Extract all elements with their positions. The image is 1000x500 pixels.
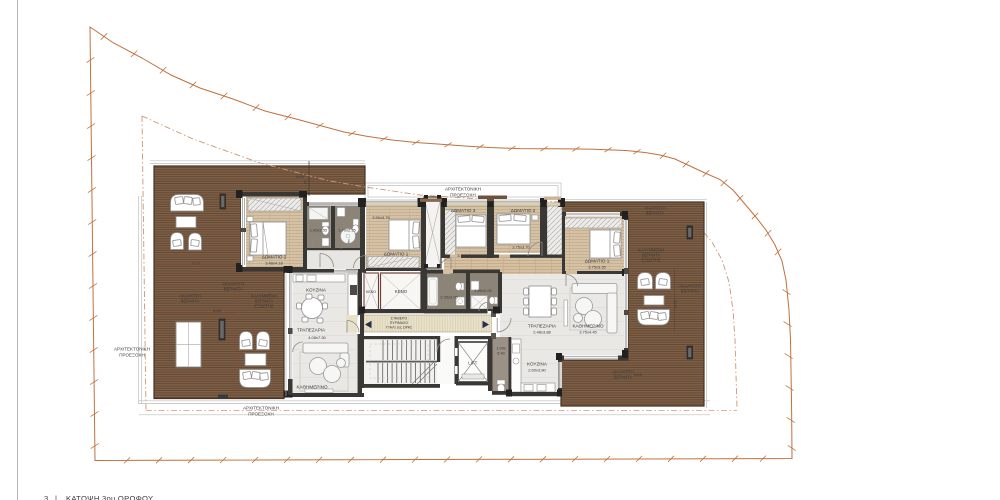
svg-text:8.06: 8.06	[634, 372, 643, 377]
svg-text:5.19: 5.19	[192, 261, 201, 266]
svg-text:ΕΞΩΣΤΗΣ: ΕΞΩΣΤΗΣ	[642, 258, 661, 263]
svg-text:ΚΟΥΖΙΝΑ: ΚΟΥΖΙΝΑ	[527, 362, 548, 367]
svg-text:ΕΞΩΣΤΗΣ: ΕΞΩΣΤΗΣ	[255, 304, 274, 309]
svg-text:1.09x: 1.09x	[496, 347, 505, 351]
svg-text:2.35x2.05: 2.35x2.05	[440, 295, 458, 300]
svg-text:60: 60	[304, 180, 308, 184]
svg-text:ΤΡΑΠΕΖΑΡΙΑ: ΤΡΑΠΕΖΑΡΙΑ	[528, 324, 557, 329]
svg-text:ΒΕΡΑΝΤΑ: ΒΕΡΑΝΤΑ	[181, 299, 200, 304]
svg-text:5.40: 5.40	[497, 352, 504, 356]
svg-text:ΚΑΤΟΨΗ 3ου ΟΡΟΦΟΥ: ΚΑΤΟΨΗ 3ου ΟΡΟΦΟΥ	[66, 494, 153, 500]
svg-text:ΑΡΧΙΤΕΚΤΟΝΙΚΗ: ΑΡΧΙΤΕΚΤΟΝΙΚΗ	[243, 406, 279, 411]
svg-text:|: |	[55, 494, 57, 500]
svg-text:3.50x3.75: 3.50x3.75	[372, 215, 390, 220]
svg-text:3: 3	[44, 494, 48, 500]
svg-text:LIFT: LIFT	[468, 361, 477, 366]
svg-text:8.00: 8.00	[296, 174, 305, 179]
svg-text:9.06: 9.06	[674, 300, 678, 307]
svg-text:2.48x3.88: 2.48x3.88	[533, 330, 551, 335]
svg-text:ΚΑΘΗΜΕΡΙΝΟ: ΚΑΘΗΜΕΡΙΝΟ	[296, 385, 327, 390]
svg-text:3.48x4.18: 3.48x4.18	[265, 261, 283, 266]
svg-text:3.75x3.35: 3.75x3.35	[588, 265, 606, 270]
svg-text:ΑΡΧΙΤΕΚΤΟΝΙΚΗ: ΑΡΧΙΤΕΚΤΟΝΙΚΗ	[114, 347, 150, 352]
svg-text:ΓΥΑΛΙ 1ας ΩΡΑΣ: ΓΥΑΛΙ 1ας ΩΡΑΣ	[386, 326, 413, 330]
svg-text:ΔΩΜΑΤΙΟ 2: ΔΩΜΑΤΙΟ 2	[262, 255, 287, 260]
svg-text:1.80x2.05: 1.80x2.05	[474, 288, 492, 293]
svg-text:ΒΕΡΑΝΤΑ: ΒΕΡΑΝΤΑ	[224, 287, 243, 292]
svg-text:ΒΕΡΑΝΤΑ: ΒΕΡΑΝΤΑ	[646, 211, 665, 216]
svg-text:1.90x2.55: 1.90x2.55	[310, 228, 328, 233]
svg-text:2.60x3.80: 2.60x3.80	[528, 368, 546, 373]
svg-text:ΚΕΝΟ: ΚΕΝΟ	[366, 290, 376, 294]
svg-text:3.75x3.70: 3.75x3.70	[512, 245, 530, 250]
svg-text:ΠΥΡΙΜΑΧΟ: ΠΥΡΙΜΑΧΟ	[390, 321, 409, 325]
svg-text:ΚΟΥΖΙΝΑ: ΚΟΥΖΙΝΑ	[306, 288, 327, 293]
svg-text:ΤΡΑΠΕΖΑΡΙΑ: ΤΡΑΠΕΖΑΡΙΑ	[297, 328, 326, 333]
svg-text:ΚΑΘΗΜΕΡΙΝΟ: ΚΑΘΗΜΕΡΙΝΟ	[572, 324, 603, 329]
svg-text:ΠΡΟΕΞΟΧΗ: ΠΡΟΕΞΟΧΗ	[248, 412, 273, 417]
svg-text:ΒΕΡΑΝΤΑ: ΒΕΡΑΝΤΑ	[614, 375, 633, 380]
svg-text:8.00: 8.00	[213, 308, 222, 313]
svg-text:ΠΡΟΕΞΟΧΗ: ΠΡΟΕΞΟΧΗ	[450, 193, 475, 198]
svg-text:ΔΩΜΑΤΙΟ 3: ΔΩΜΑΤΙΟ 3	[451, 208, 476, 213]
svg-text:ΔΩΜΑΤΙΟ 2: ΔΩΜΑΤΙΟ 2	[511, 208, 536, 213]
svg-text:ΑΡΧΙΤΕΚΤΟΝΙΚΗ: ΑΡΧΙΤΕΚΤΟΝΙΚΗ	[445, 187, 481, 192]
svg-text:1.70x2.35: 1.70x2.35	[338, 228, 356, 233]
svg-text:ΔΩΜΑΤΙΟ 1: ΔΩΜΑΤΙΟ 1	[384, 252, 409, 257]
svg-text:ΠΡΟΕΞΟΧΗ: ΠΡΟΕΞΟΧΗ	[119, 353, 144, 358]
svg-text:ΣΤΑΘΕΡΟ: ΣΤΑΘΕΡΟ	[391, 317, 408, 321]
svg-text:ΔΩΜΑΤΙΟ 1: ΔΩΜΑΤΙΟ 1	[585, 259, 610, 264]
svg-text:3.75x4.45: 3.75x4.45	[579, 330, 597, 335]
svg-text:ΚΕΝΟ: ΚΕΝΟ	[395, 289, 408, 294]
svg-text:ΒΕΡΑΝΤΑ: ΒΕΡΑΝΤΑ	[681, 289, 700, 294]
svg-text:3.75x4.20: 3.75x4.20	[457, 253, 475, 258]
svg-text:4.08x7.30: 4.08x7.30	[308, 335, 326, 340]
